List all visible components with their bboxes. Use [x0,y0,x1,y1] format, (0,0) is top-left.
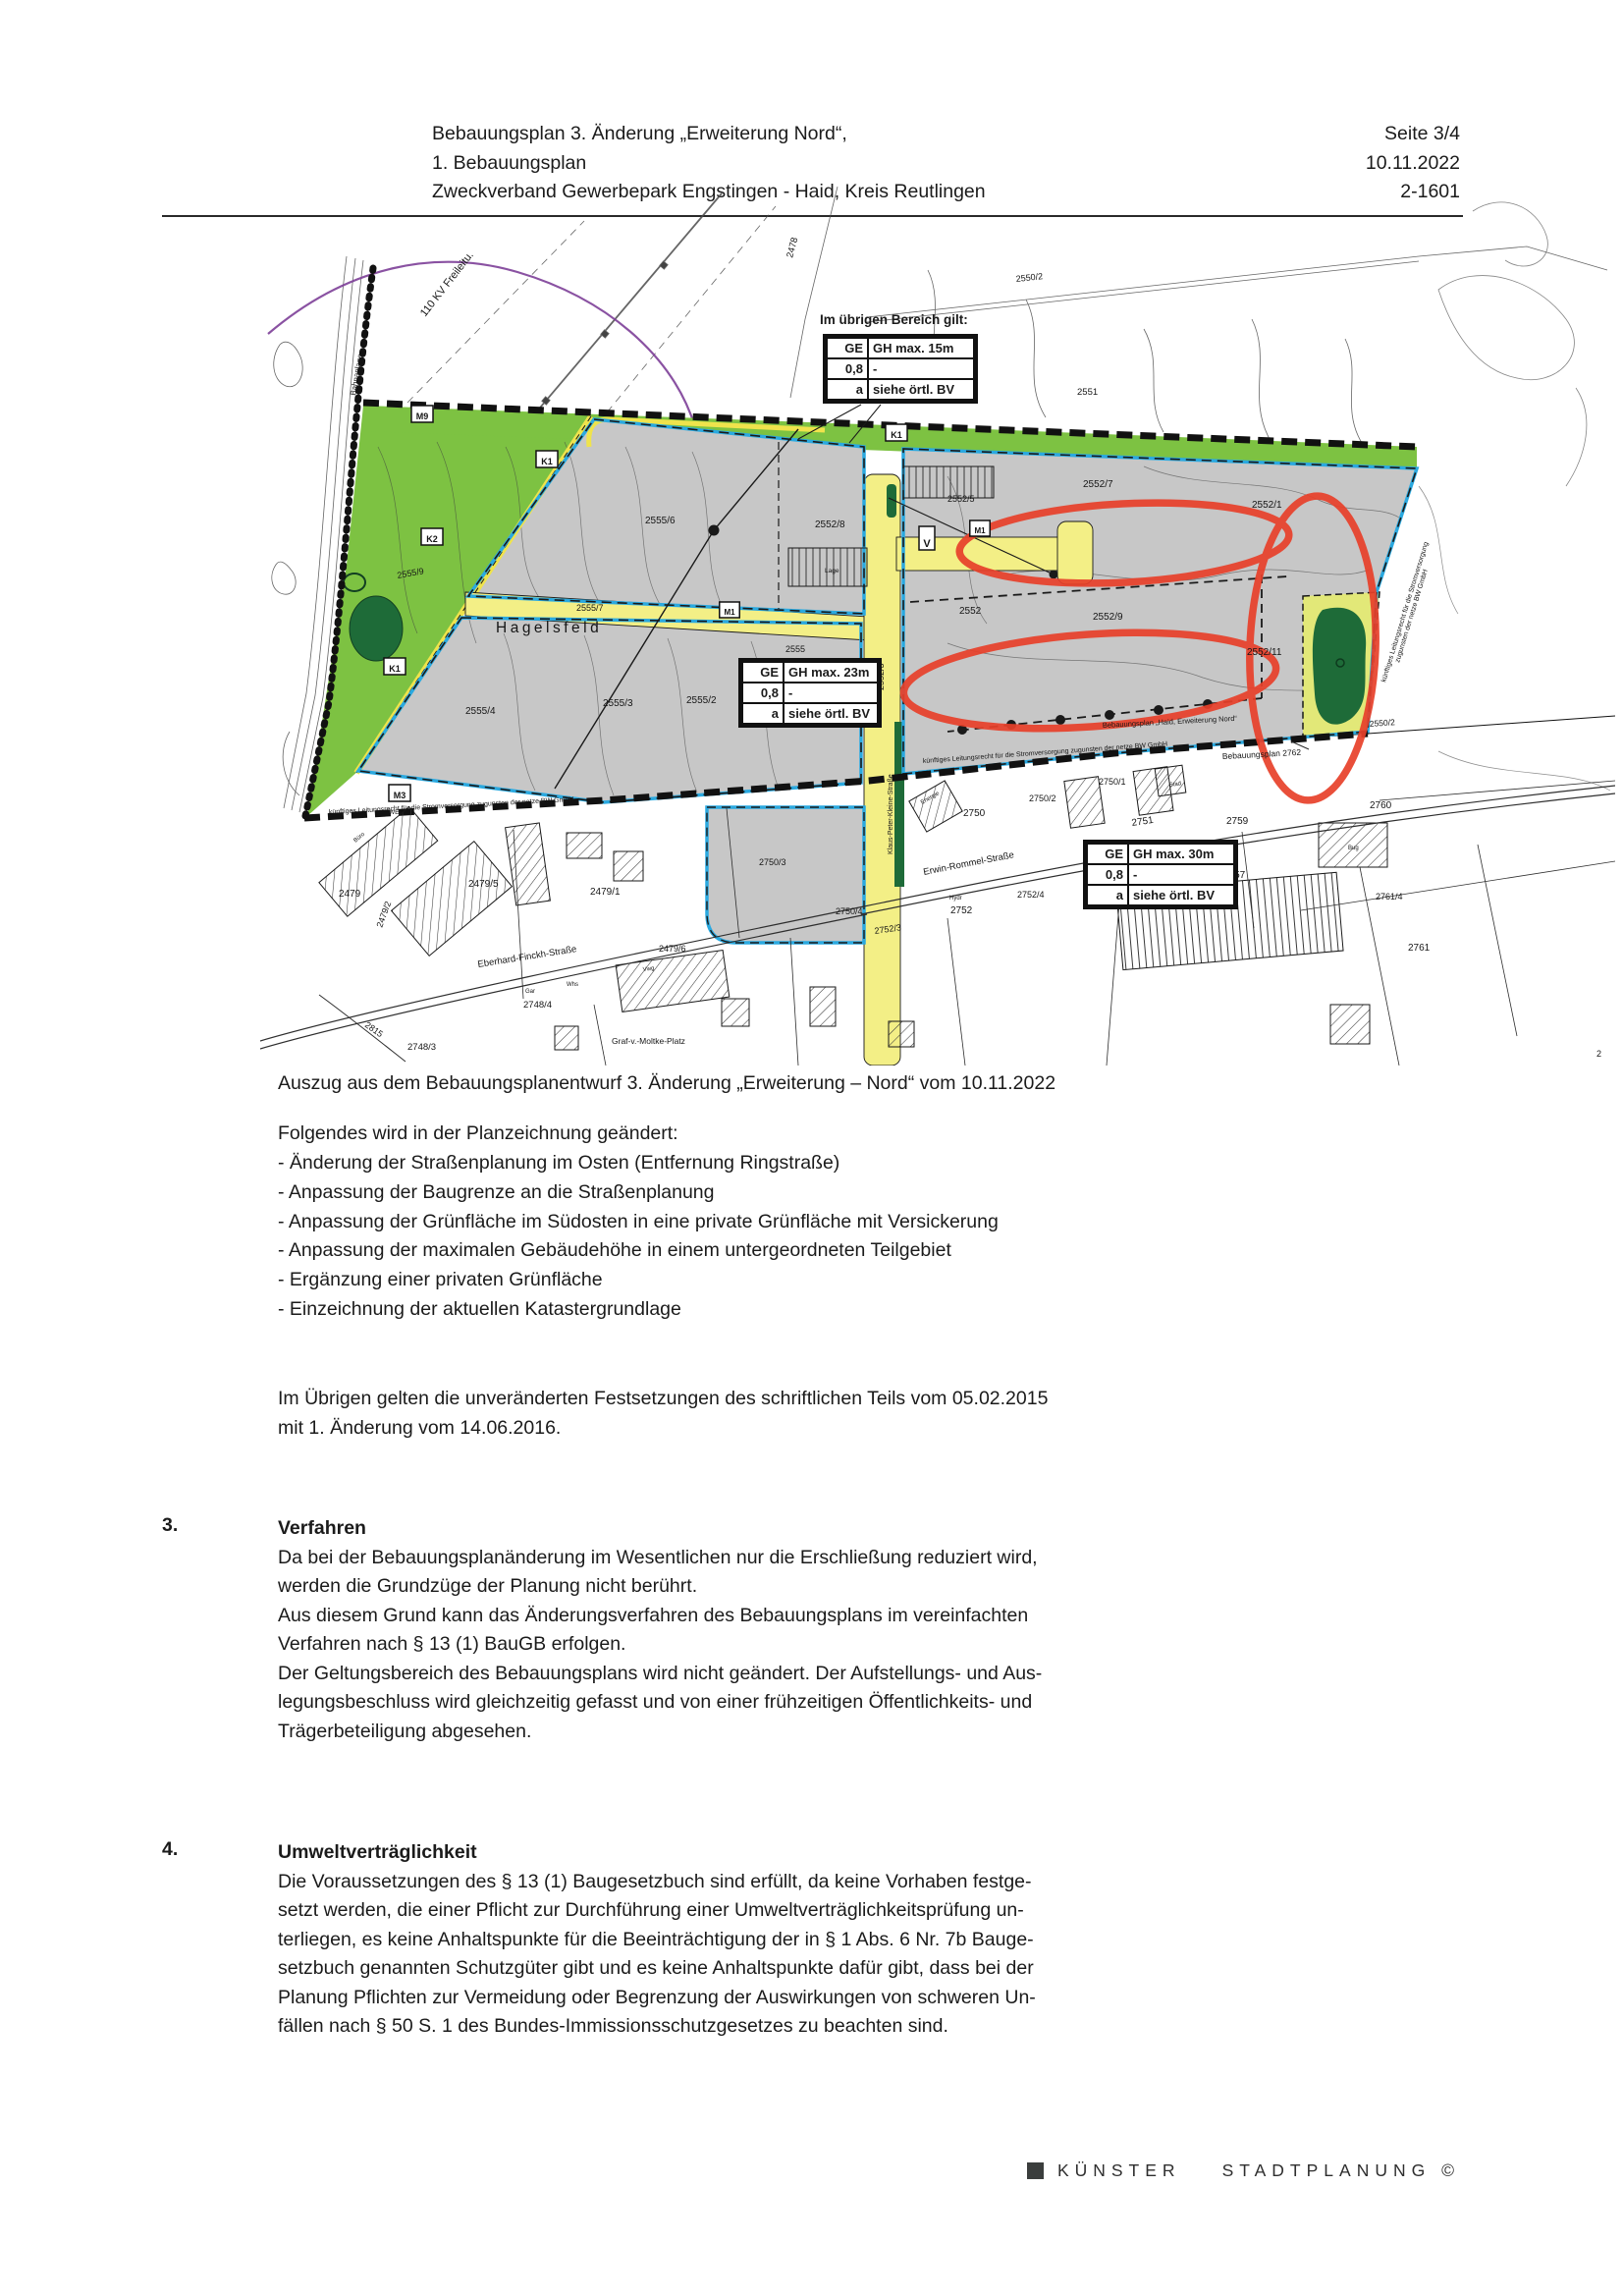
svg-text:künftiges Leitungsrecht für di: künftiges Leitungsrecht für die Stromver… [329,796,574,816]
infobox-cell: siehe örtl. BV [784,703,878,724]
doc-title-line1: Bebauungsplan 3. Änderung „Erweiterung N… [432,120,986,149]
map-label: 2552/5 [947,494,975,504]
map-label: 2555/7 [576,603,604,613]
map-label: 2750/4 [836,906,863,916]
section-verfahren: 3. Verfahren Da bei der Bebauungsplanänd… [162,1514,1478,1746]
map-label: 2752 [950,905,973,916]
infobox-heading: Im übrigen Bereich gilt: [820,312,968,327]
svg-text:2752: 2752 [950,905,973,916]
svg-text:K1: K1 [541,457,553,466]
map-label: 2550/2 [1369,717,1395,729]
svg-text:künftiges Leitungsrecht für di: künftiges Leitungsrecht für die Stromver… [1380,541,1430,683]
svg-text:2750/4: 2750/4 [836,906,863,916]
map-label: Klaus-Peter-Kleine-Straße [888,774,894,854]
map-label: Gar [525,989,535,995]
svg-text:2552/8: 2552/8 [815,519,845,530]
svg-text:2552/9: 2552/9 [1093,612,1123,623]
svg-text:2479: 2479 [339,889,361,900]
map-label: M1 [720,602,739,618]
svg-text:2: 2 [1596,1049,1601,1059]
site-plan-map: 110 KV Freileitu.24782550/22551Bahnanlag… [260,152,1615,1066]
map-label: 2552/8 [815,519,845,530]
map-label: 2479/5 [468,879,499,890]
map-svg: 110 KV Freileitu.24782550/22551Bahnanlag… [260,152,1615,1066]
map-label: 2551 [1077,387,1098,398]
footer: KÜNSTER STADTPLANUNG © [1027,2160,1460,2181]
map-label: 2761 [1408,943,1431,954]
map-label: 2552/11 [1247,647,1282,658]
kuenster-logo-icon [1027,2162,1044,2179]
infobox-cell: GH max. 23m [784,662,878,683]
infobox-cell: a [827,379,868,400]
map-label: künftiges Leitungsrecht für die Stromver… [1380,541,1430,683]
map-label: Lage [825,568,839,574]
infobox-cell: - [868,358,974,379]
list-item: - Anpassung der Grünfläche im Südosten i… [278,1208,1471,1237]
svg-text:2552/11: 2552/11 [1247,647,1282,658]
svg-text:110 KV Freileitu.: 110 KV Freileitu. [418,249,476,319]
svg-text:Lage: Lage [825,568,839,574]
intro-heading: Folgendes wird in der Planzeichnung geän… [278,1120,1471,1149]
map-label: Eberhard-Finckh-Straße [477,944,577,970]
map-label: 2555/4 [465,706,496,717]
svg-text:2478: 2478 [784,237,800,259]
svg-text:2551: 2551 [1077,387,1098,398]
paragraph-festsetzungen: Im Übrigen gelten die unveränderten Fest… [278,1385,1471,1443]
svg-text:M1: M1 [724,608,735,617]
map-label: K1 [536,451,558,467]
svg-text:2748/4: 2748/4 [523,1000,552,1011]
map-label: 2760 [1370,800,1392,811]
svg-text:K1: K1 [891,430,902,440]
section-number: 3. [162,1514,278,1746]
svg-text:2550/2: 2550/2 [1369,717,1395,729]
svg-text:2761: 2761 [1408,943,1431,954]
map-label: K2 [421,528,443,545]
infobox-cell: - [784,683,878,703]
infobox-ge-15m: GEGH max. 15m 0,8- asiehe örtl. BV [823,334,978,404]
svg-text:Bebauungsplan 2762: Bebauungsplan 2762 [1222,747,1302,761]
map-label: 2752/4 [1017,890,1045,900]
map-label: Bug [1348,846,1359,851]
svg-text:2760: 2760 [1370,800,1392,811]
infobox-cell: GE [827,338,868,358]
svg-text:2761/4: 2761/4 [1376,892,1403,902]
map-label: 2748/4 [523,1000,552,1011]
map-label: 2555/2 [686,695,717,706]
map-label: 2479/2 [374,900,393,928]
svg-text:Eberhard-Finckh-Straße: Eberhard-Finckh-Straße [477,944,577,970]
infobox-ge-23m: GEGH max. 23m 0,8- asiehe örtl. BV [738,658,882,728]
svg-text:2750/1: 2750/1 [1099,777,1126,787]
map-label: V [919,526,935,550]
infobox-cell: GH max. 15m [868,338,974,358]
section-text: Da bei der Bebauungsplanänderung im Wese… [278,1544,1471,1747]
map-label: Graf-v.-Moltke-Platz [612,1036,685,1046]
map-label: Whs [567,982,578,988]
infobox-cell: - [1128,864,1234,885]
map-label: 2552/7 [1083,479,1113,490]
svg-text:2751: 2751 [1131,815,1155,829]
svg-text:Gar: Gar [525,989,535,995]
infobox-cell: GE [742,662,784,683]
svg-text:Graf-v.-Moltke-Platz: Graf-v.-Moltke-Platz [612,1036,685,1046]
list-item: - Ergänzung einer privaten Grünfläche [278,1266,1471,1295]
infobox-cell: siehe örtl. BV [1128,885,1234,905]
svg-text:M9: M9 [416,411,429,421]
svg-text:2479/1: 2479/1 [590,887,621,898]
map-label: M1 [970,520,990,536]
infobox-cell: a [742,703,784,724]
map-label: 2550/2 [1015,271,1043,284]
document-page: Bebauungsplan 3. Änderung „Erweiterung N… [0,0,1623,2296]
map-caption: Auszug aus dem Bebauungsplanentwurf 3. Ä… [278,1072,1055,1095]
svg-text:2552/5: 2552/5 [947,494,975,504]
svg-text:2750/2: 2750/2 [1029,793,1056,803]
map-label: 2552 [959,606,982,617]
infobox-ge-30m: GEGH max. 30m 0,8- asiehe örtl. BV [1083,840,1238,909]
map-label: Büro [352,831,366,844]
svg-text:Bug: Bug [1348,846,1359,851]
map-label: 2759 [1226,816,1249,827]
section-umweltvertraeglichkeit: 4. Umweltverträglichkeit Die Voraussetzu… [162,1838,1478,2042]
svg-text:Erwin-Rommel-Straße: Erwin-Rommel-Straße [922,849,1014,878]
svg-text:2552/7: 2552/7 [1083,479,1113,490]
section-text: Die Voraussetzungen des § 13 (1) Baugese… [278,1868,1471,2042]
svg-text:M1: M1 [974,526,986,535]
map-label: 2555 [785,644,805,654]
infobox-cell: 0,8 [742,683,784,703]
svg-text:2479/5: 2479/5 [468,879,499,890]
svg-text:Klaus-Peter-Kleine-Straße: Klaus-Peter-Kleine-Straße [888,774,894,854]
svg-text:K2: K2 [426,534,438,544]
map-label: M9 [411,406,433,422]
list-item: - Einzeichnung der aktuellen Katastergru… [278,1295,1471,1325]
map-label: 2478 [784,237,800,259]
footer-word2: STADTPLANUNG © [1222,2160,1460,2181]
map-label: 2552/9 [1093,612,1123,623]
map-label: K1 [886,424,907,441]
map-label: 2555/6 [645,516,676,526]
svg-text:2748/3: 2748/3 [407,1042,436,1053]
infobox-cell: 0,8 [827,358,868,379]
svg-text:Büro: Büro [352,831,366,844]
map-label: 2555/3 [603,698,633,709]
svg-text:2555: 2555 [785,644,805,654]
svg-text:2555/4: 2555/4 [465,706,496,717]
svg-text:2550/2: 2550/2 [1015,271,1043,284]
infobox-cell: GH max. 30m [1128,844,1234,864]
map-label: 2750 [963,808,986,819]
svg-text:2759: 2759 [1226,816,1249,827]
map-label: 2 [1596,1049,1601,1059]
svg-text:2479/2: 2479/2 [374,900,393,928]
footer-word1: KÜNSTER [1057,2160,1181,2181]
svg-text:2750: 2750 [963,808,986,819]
svg-text:2555/6: 2555/6 [645,516,676,526]
list-item: - Anpassung der maximalen Gebäudehöhe in… [278,1236,1471,1266]
svg-text:Hagelsfeld: Hagelsfeld [496,620,602,636]
svg-text:K1: K1 [389,664,401,674]
map-label: 2750/3 [759,857,786,867]
map-label: 2751 [1131,815,1155,829]
infobox-cell: a [1087,885,1128,905]
infobox-cell: GE [1087,844,1128,864]
infobox-cell: 0,8 [1087,864,1128,885]
svg-text:2552: 2552 [959,606,982,617]
svg-text:2555/2: 2555/2 [686,695,717,706]
map-label: künftiges Leitungsrecht für die Stromver… [329,796,574,816]
infobox-cell: siehe örtl. BV [868,379,974,400]
map-label: 2479/1 [590,887,621,898]
map-label: 2761/4 [1376,892,1403,902]
list-item: - Änderung der Straßenplanung im Osten (… [278,1149,1471,1178]
map-label: 2479 [339,889,361,900]
svg-text:2750/3: 2750/3 [759,857,786,867]
map-label: Hagelsfeld [496,620,602,636]
svg-text:2555/3: 2555/3 [603,698,633,709]
svg-text:M3: M3 [394,791,406,800]
page-number: Seite 3/4 [1366,120,1460,149]
map-label: 2479/6 [659,944,686,954]
svg-text:Hydr: Hydr [949,896,962,902]
svg-text:Whs: Whs [567,982,578,988]
svg-text:2752/4: 2752/4 [1017,890,1045,900]
section-title: Umweltverträglichkeit [278,1838,1471,1868]
map-label: Bebauungsplan 2762 [1222,747,1302,761]
map-label: Hydr [949,896,962,902]
map-label: 2750/2 [1029,793,1056,803]
map-label: 110 KV Freileitu. [418,249,476,319]
map-label: 2748/3 [407,1042,436,1053]
svg-text:2479/6: 2479/6 [659,944,686,954]
svg-text:2555/7: 2555/7 [576,603,604,613]
map-label: M3 [389,785,410,801]
map-label: 2750/1 [1099,777,1126,787]
svg-text:2552/1: 2552/1 [1252,500,1282,511]
map-label: 2552/1 [1252,500,1282,511]
map-label: Erwin-Rommel-Straße [922,849,1014,878]
list-item: - Anpassung der Baugrenze an die Straßen… [278,1178,1471,1208]
section-title: Verfahren [278,1514,1471,1544]
svg-text:V: V [923,538,931,550]
section-number: 4. [162,1838,278,2042]
intro-change-list: - Änderung der Straßenplanung im Osten (… [278,1149,1471,1325]
map-label: K1 [384,658,406,675]
